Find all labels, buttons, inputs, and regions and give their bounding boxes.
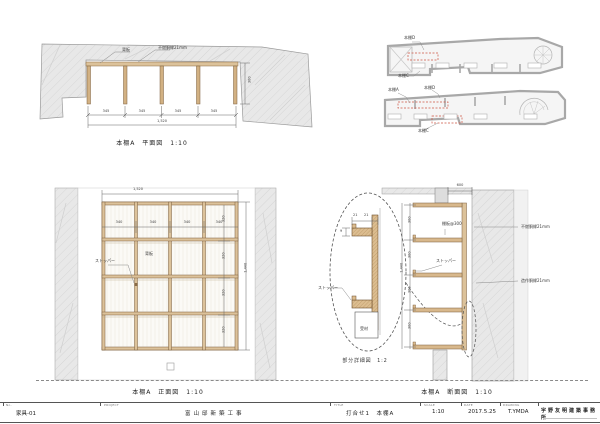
titleblock-scale-label: SCALE [424, 403, 435, 407]
plan-panel-label: 不燃胴縁21mm [158, 46, 187, 50]
title-block-tick [100, 402, 101, 406]
plan-depth-dim: 300 [248, 65, 252, 95]
elevation-overall-h-dim: 1,440 [244, 253, 248, 283]
elevation-row-dim: 320 [222, 241, 226, 271]
key-lower-shelf-c-label: 本棚C [418, 129, 429, 133]
titleblock-project-value: 富山邸新築工事 [185, 409, 245, 417]
elevation-bay-dim: 340 [179, 221, 195, 225]
titleblock-drawing-label: DRAWING [503, 403, 520, 407]
title-block-bottom-rule [0, 422, 600, 423]
plan-posts [87, 66, 237, 104]
section-pedestal [433, 350, 447, 380]
titleblock-title-label: TITLE [334, 403, 344, 407]
key-upper-shelf-c-label: 本棚C [398, 74, 409, 78]
titleblock-no-label: No. [6, 403, 12, 407]
detail-balloon [328, 193, 466, 351]
section-view [382, 187, 528, 381]
elevation-bay-dim: 340 [111, 221, 127, 225]
titleblock-firm-name: 宇野友明建築事務所 [541, 407, 600, 423]
plan-wall [40, 44, 312, 127]
plan-bay-dim: 345 [98, 110, 114, 114]
key-lower-shelf-d-label: 本棚D [424, 86, 435, 90]
title-block-tick [3, 402, 4, 406]
titleblock-date-label: DATE [464, 403, 473, 407]
detail-t2-dim: 21 [364, 214, 368, 218]
section-shelf-pitch-label: 棚板@300 [442, 222, 462, 226]
section-pitch-dim: 300 [408, 275, 412, 305]
section-finish-bottom-label: 造作胴縁21mm [521, 279, 550, 283]
key-plan-upper [388, 38, 562, 76]
elevation-bay-dim: 340 [145, 221, 161, 225]
detail-stopper-label: ストッパー [318, 286, 338, 290]
title-block-tick [538, 402, 539, 406]
plan-bay-dim: 345 [134, 110, 150, 114]
drawing-sheet: 背板 不燃胴縁21mm 345 345 345 345 1,520 300 本棚… [0, 0, 600, 424]
plan-back-board [86, 62, 238, 66]
section-pitch-dim: 300 [408, 205, 412, 235]
floor-line [36, 380, 588, 381]
section-pitch-dim: 300 [408, 311, 412, 341]
elevation-stopper-mark [135, 283, 138, 286]
titleblock-scale-value: 1:10 [432, 409, 444, 415]
plan-overall-dim: 1,520 [142, 120, 182, 124]
elevation-drawing [38, 183, 318, 393]
title-block-tick [420, 402, 421, 406]
key-lower-shelf-a-label: 本棚A [388, 88, 399, 92]
titleblock-project-label: PROJECT [104, 403, 119, 407]
key-upper-shelf-d-label: 本棚D [404, 36, 415, 40]
elevation-overall-w-dim: 1,520 [118, 188, 158, 192]
section-back-board [462, 203, 467, 350]
section-caption: 本棚A 断面図 1:10 [398, 390, 516, 396]
section-stopper-label: ストッパー [436, 259, 456, 263]
title-block-tick [500, 402, 501, 406]
detail-gap-dim: 9 [340, 230, 342, 234]
section-top-dim: 600 [448, 184, 472, 188]
elevation-caption: 本棚A 正面図 1:10 [108, 390, 228, 396]
titleblock-firm-contact-line [543, 418, 597, 419]
detail-caption: 部分詳細図 1:2 [328, 359, 402, 364]
title-block-tick [461, 402, 462, 406]
elevation-row-dim: 320 [222, 204, 226, 234]
title-block-tick [330, 402, 331, 406]
key-plan-lower [385, 90, 565, 131]
section-dimensions [402, 187, 472, 349]
elevation-row-dim: 320 [222, 278, 226, 308]
section-pitch-dim: 300 [408, 240, 412, 270]
plan-dimensions [86, 63, 250, 128]
titleblock-no-value: 家具-01 [16, 409, 36, 417]
key-plans-drawing [380, 30, 590, 140]
titleblock-drawing-value: T.YMDA [508, 409, 528, 415]
section-finish-top-label: 不燃胴縁21mm [521, 225, 550, 229]
elevation-back-board-label: 背板 [145, 252, 153, 256]
titleblock-date-value: 2017.5.25 [468, 409, 496, 415]
elevation-stopper-label: ストッパー [95, 259, 115, 263]
detail-t1-dim: 21 [353, 214, 357, 218]
plan-bay-dim: 345 [170, 110, 186, 114]
plan-caption: 本棚A 平面図 1:10 [92, 141, 212, 147]
section-stoppers [413, 235, 416, 345]
elevation-row-dim: 320 [222, 315, 226, 345]
detail-support-label: 受材 [360, 327, 368, 331]
section-overall-dim: 1,440 [400, 253, 404, 283]
plan-back-board-label: 背板 [122, 48, 130, 52]
plan-bay-dim: 345 [206, 110, 222, 114]
titleblock-title-value: 打合せ1 本棚A [346, 409, 394, 417]
